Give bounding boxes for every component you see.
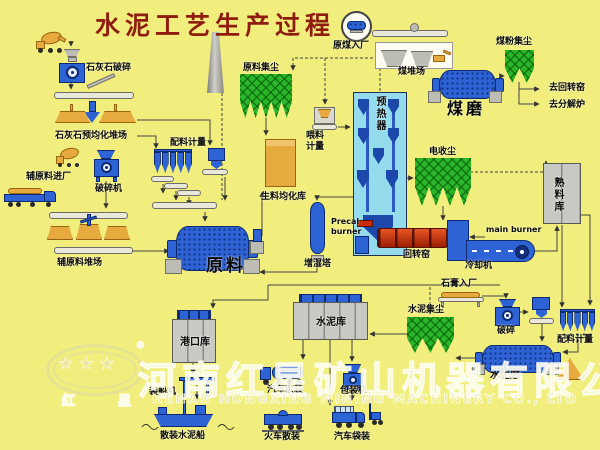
watermark-company-en: HENAN HONGXING MINING MACHINERY CO., LTD xyxy=(152,391,578,406)
aux-pile xyxy=(76,224,102,240)
label-batching-right: 配料计量 xyxy=(557,335,593,346)
label-raw-mill: 原料 xyxy=(206,256,246,276)
wheel xyxy=(46,202,51,207)
crusher-leg xyxy=(113,177,117,182)
surge-hopper xyxy=(532,297,550,310)
label-aux-yard: 辅原料堆场 xyxy=(57,258,102,269)
label-precal-burner: Precal burner xyxy=(331,217,361,236)
batching-hoppers-right xyxy=(560,312,595,331)
receiving-hopper-chute xyxy=(68,57,77,62)
flatbed-truck-cab xyxy=(44,191,56,202)
label-cooler: 冷却机 xyxy=(465,261,492,272)
ship-hull xyxy=(152,414,215,427)
conveyor-feeder xyxy=(410,23,419,32)
hopper xyxy=(582,312,588,331)
limestone-pile xyxy=(55,111,90,123)
hopper xyxy=(574,312,580,331)
label-raw-dust: 原料集尘 xyxy=(243,63,279,74)
label-crusher: 破碎机 xyxy=(95,184,122,195)
conveyor xyxy=(54,92,134,99)
wheel xyxy=(58,163,62,167)
label-feeding-metering: 喂料 计量 xyxy=(306,131,324,153)
bucket-elevator-base xyxy=(250,241,264,254)
wheel xyxy=(38,48,43,53)
mill-end-cap xyxy=(495,78,504,92)
hopper xyxy=(170,152,177,173)
conveyor xyxy=(152,202,217,209)
wheel xyxy=(372,420,377,425)
crusher-shaft xyxy=(506,314,509,317)
coal-mill-body xyxy=(439,70,496,99)
hopper xyxy=(162,152,169,173)
loader-body xyxy=(433,55,445,62)
conveyor xyxy=(312,124,337,130)
label-coal-dust: 煤粉集尘 xyxy=(496,37,532,48)
preheater-pipe xyxy=(392,100,395,212)
conveyor xyxy=(54,247,133,254)
label-raw-meal-silo: 生料均化库 xyxy=(261,192,306,203)
ship-cabin xyxy=(158,407,167,415)
wheel xyxy=(30,202,35,207)
hopper xyxy=(177,152,184,173)
label-bulk-ship: 散装水泥船 xyxy=(160,431,205,442)
crusher-leg xyxy=(96,177,100,182)
wheel xyxy=(336,422,342,428)
wheel xyxy=(48,48,53,53)
cement-dust-collector xyxy=(407,317,454,353)
mill-base xyxy=(428,91,441,103)
logo-brand-right: 星 xyxy=(118,390,132,409)
conveyor-leg xyxy=(477,302,480,307)
bucket-elevator xyxy=(253,229,262,242)
wheel xyxy=(346,422,352,428)
conveyor xyxy=(529,318,554,324)
conveyor xyxy=(177,190,201,196)
coal-intake-mill xyxy=(347,21,366,30)
label-clinker-silo: 熟料库 xyxy=(551,177,563,213)
coal-intake-base xyxy=(350,30,363,33)
stacker-chute xyxy=(89,101,96,112)
wheel xyxy=(67,163,71,167)
gypsum-material xyxy=(441,292,480,298)
pile-probe xyxy=(70,104,73,111)
mill-base xyxy=(165,259,182,274)
hopper xyxy=(154,152,161,173)
preheater-pipe xyxy=(366,100,369,212)
label-to-rotary-kiln: 去回转窑 xyxy=(549,83,585,94)
hopper xyxy=(185,152,192,173)
wheel xyxy=(358,422,364,428)
logo-brand-left: 红 xyxy=(62,390,76,409)
label-humidifying-tower: 增湿塔 xyxy=(304,259,331,270)
hopper xyxy=(589,312,595,331)
hopper xyxy=(560,312,566,331)
cooler-hub xyxy=(520,250,524,254)
mill-base xyxy=(489,91,502,103)
conveyor xyxy=(151,176,174,182)
cement-process-diagram: 水泥工艺生产过程 xyxy=(0,0,600,450)
pile-probe xyxy=(114,104,117,111)
label-to-calciner: 去分解炉 xyxy=(549,100,585,111)
wheel xyxy=(8,202,13,207)
label-raw-coal-entry: 原煤入厂 xyxy=(333,41,369,52)
label-aux-entry: 辅原料进厂 xyxy=(26,172,71,183)
aux-pile xyxy=(47,226,73,240)
label-gypsum-crushing: 破碎 xyxy=(497,326,515,337)
ship-cabin xyxy=(195,405,206,415)
wheel xyxy=(57,48,62,53)
wheel xyxy=(378,420,383,425)
label-limestone-yard: 石灰石预均化堆场 xyxy=(55,131,127,142)
label-coal-yard: 煤堆场 xyxy=(398,67,425,78)
weigh-hopper xyxy=(208,148,225,161)
batching-hoppers xyxy=(154,152,192,173)
forklift-body xyxy=(371,412,381,420)
page-title: 水泥工艺生产过程 xyxy=(95,6,335,42)
logo-stars-icon: ★ ★ ★ xyxy=(58,354,115,374)
bag-truck-bed xyxy=(332,412,356,423)
wheel xyxy=(75,163,79,167)
crusher-shaft xyxy=(105,166,108,169)
label-main-burner: main burner xyxy=(486,225,541,235)
kiln-inlet-box xyxy=(355,236,369,254)
label-gypsum-entry: 石膏入厂 xyxy=(441,279,477,290)
label-truck-bag: 汽车袋装 xyxy=(334,432,370,443)
wheel xyxy=(16,202,21,207)
label-port-silo: 港口库 xyxy=(180,337,210,349)
train-dome xyxy=(278,410,288,416)
conveyor xyxy=(202,169,228,175)
label-preheater: 预热器 xyxy=(373,96,385,132)
label-coal-mill: 煤磨 xyxy=(447,99,485,118)
flatbed-truck-bed xyxy=(4,194,46,202)
coal-conveyor xyxy=(372,30,448,37)
limestone-pile xyxy=(99,111,136,123)
crusher-shaft xyxy=(71,71,74,74)
label-rotary-kiln: 回转窑 xyxy=(403,250,430,261)
label-train-bulk: 火车散装 xyxy=(264,432,300,443)
humidifying-tower-body xyxy=(310,202,325,254)
label-limestone-crushing: 石灰石破碎 xyxy=(86,63,131,74)
label-esp: 电收尘 xyxy=(429,147,456,158)
label-batching-left: 配料计量 xyxy=(170,138,206,149)
label-cement-dust: 水泥集尘 xyxy=(408,305,444,316)
hopper xyxy=(567,312,573,331)
raw-meal-silo xyxy=(265,139,296,187)
rotary-kiln-body xyxy=(377,228,448,248)
aux-pile xyxy=(104,226,130,240)
label-cement-silo: 水泥库 xyxy=(316,317,346,329)
conveyor xyxy=(164,183,188,189)
